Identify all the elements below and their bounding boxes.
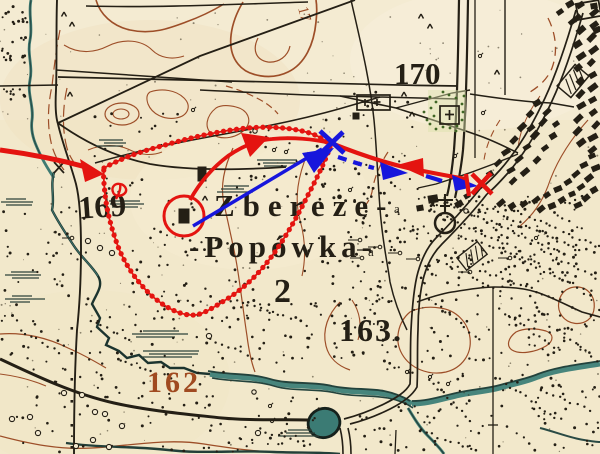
svg-text:162: 162 [147,366,201,399]
svg-text:2: 2 [274,273,291,310]
svg-text:a: a [368,244,374,259]
svg-text:163.: 163. [339,312,403,348]
svg-text:170: 170 [394,56,441,91]
svg-text:-Popówka-: -Popówka- [189,229,377,264]
svg-text:a: a [394,201,400,216]
